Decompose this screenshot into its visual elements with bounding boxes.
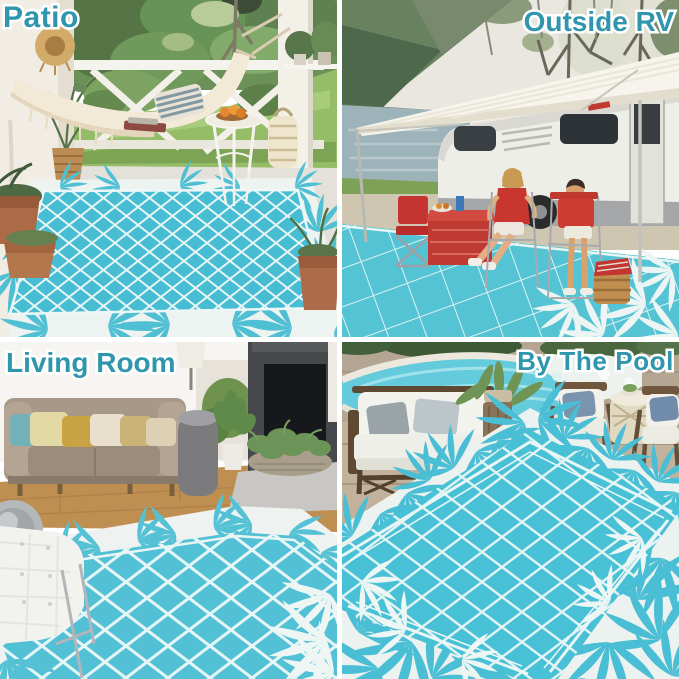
svg-text:Outside RV: Outside RV bbox=[524, 6, 675, 37]
svg-text:Patio: Patio bbox=[3, 1, 79, 34]
svg-text:Living Room: Living Room bbox=[6, 347, 176, 378]
svg-text:By The Pool: By The Pool bbox=[517, 346, 674, 376]
